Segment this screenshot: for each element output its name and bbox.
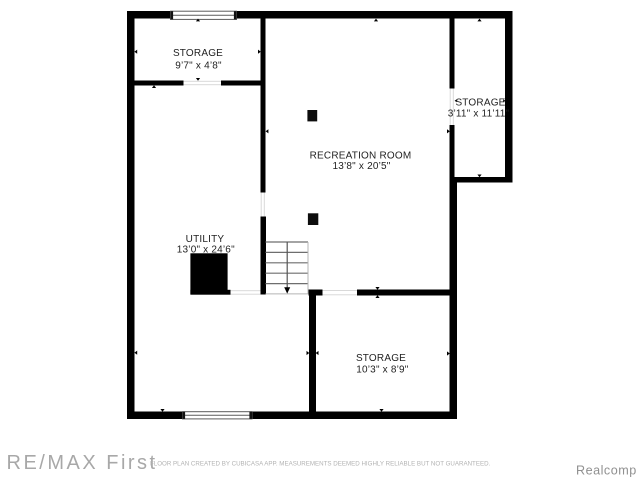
svg-text:STORAGE: STORAGE: [455, 97, 505, 108]
svg-text:STORAGE: STORAGE: [173, 48, 223, 59]
svg-text:13’0" x 24’6": 13’0" x 24’6": [177, 245, 235, 256]
svg-text:UTILITY: UTILITY: [186, 234, 225, 245]
svg-text:STORAGE: STORAGE: [356, 353, 406, 364]
svg-text:10’3" x 8’9": 10’3" x 8’9": [356, 365, 409, 376]
svg-text:13’8" x 20’5": 13’8" x 20’5": [332, 161, 390, 172]
svg-text:3’11" x 11’11": 3’11" x 11’11": [448, 109, 510, 120]
svg-text:RECREATION ROOM: RECREATION ROOM: [310, 150, 412, 161]
svg-text:9’7" x 4’8": 9’7" x 4’8": [175, 61, 222, 72]
svg-text:Realcomp: Realcomp: [576, 464, 637, 478]
svg-text:FLOOR PLAN CREATED BY CUBICASA: FLOOR PLAN CREATED BY CUBICASA APP. MEAS…: [150, 461, 491, 468]
svg-text:RE/MAX First: RE/MAX First: [7, 452, 158, 474]
